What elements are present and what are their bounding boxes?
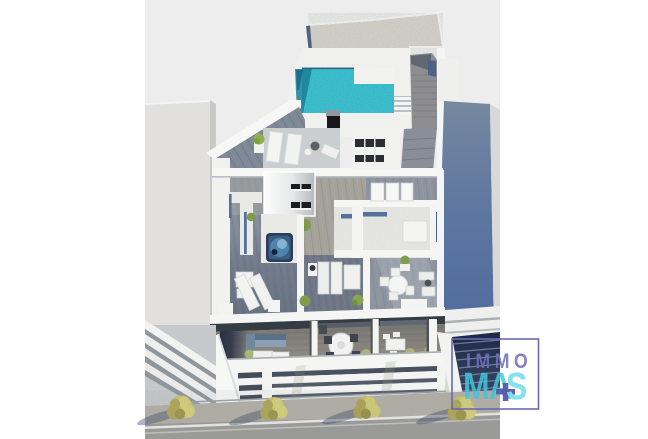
svg-text:S: S (506, 365, 527, 407)
